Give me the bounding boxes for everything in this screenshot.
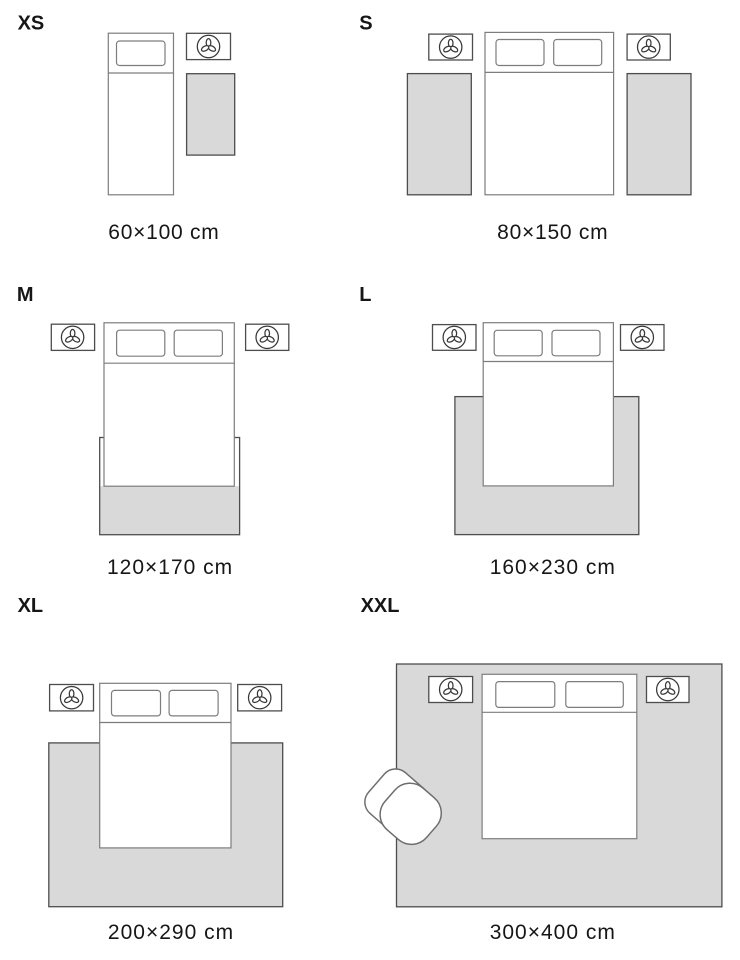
svg-text:L: L xyxy=(359,284,371,306)
svg-text:XL: XL xyxy=(18,595,44,617)
svg-text:60×100 cm: 60×100 cm xyxy=(108,221,219,244)
svg-text:XXL: XXL xyxy=(361,595,400,617)
svg-text:XS: XS xyxy=(18,12,45,34)
svg-text:200×290 cm: 200×290 cm xyxy=(108,921,234,944)
svg-text:300×400 cm: 300×400 cm xyxy=(490,921,616,944)
svg-text:M: M xyxy=(17,284,34,306)
svg-text:160×230 cm: 160×230 cm xyxy=(490,556,616,579)
svg-text:120×170 cm: 120×170 cm xyxy=(107,556,233,579)
svg-text:S: S xyxy=(359,12,372,34)
svg-text:80×150 cm: 80×150 cm xyxy=(497,221,608,244)
